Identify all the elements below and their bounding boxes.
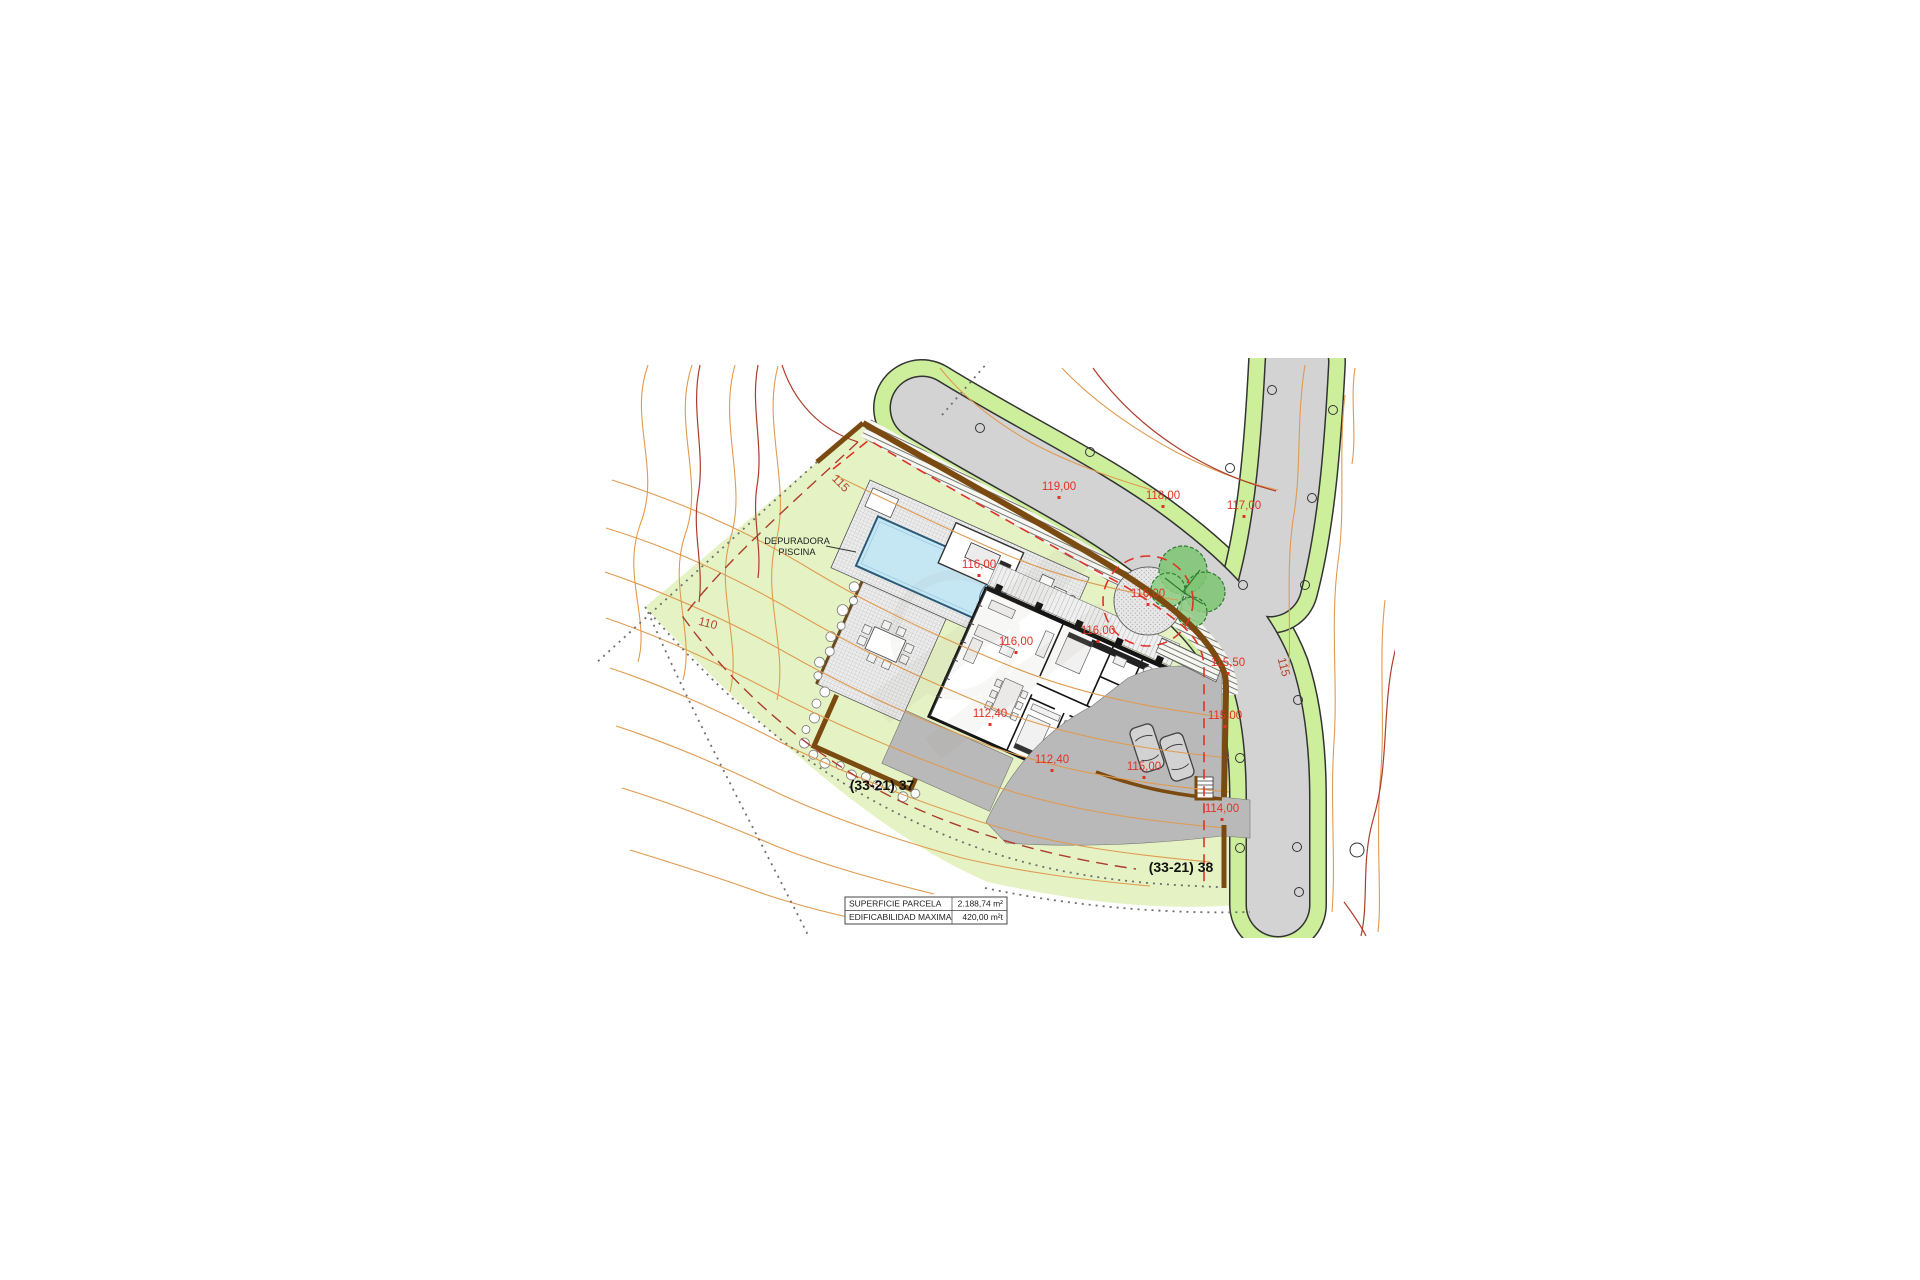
site-plan-canvas: 119,00 118,00 117,00 116,00 116,00 116,0… <box>0 0 1920 1280</box>
annotation-line2: PISCINA <box>778 547 816 557</box>
spot-elevation-label: 114,00 <box>1205 803 1239 815</box>
spot-elevation-label: 115,00 <box>1127 761 1161 773</box>
annotation-line1: DEPURADORA <box>764 536 830 546</box>
spot-elevation-label: 112,40 <box>1035 754 1069 766</box>
spot-elevation-label: 117,00 <box>1227 500 1261 512</box>
spot-elevation-label: 118,00 <box>1146 490 1180 502</box>
table-row-value: 420,00 m²t <box>962 912 1003 922</box>
spot-elevation-label: 112,40 <box>973 708 1007 720</box>
spot-elevation-label: 115,00 <box>1208 710 1242 722</box>
table-row-label: SUPERFICIE PARCELA <box>849 899 942 909</box>
spot-elevation-label: 116,00 <box>1131 588 1165 600</box>
entrance-stair <box>1196 776 1215 799</box>
site-plan-page: 119,00 118,00 117,00 116,00 116,00 116,0… <box>0 0 1920 1280</box>
spot-elevation-label: 116,00 <box>1081 625 1115 637</box>
spot-elevation-label: 116,00 <box>999 636 1033 648</box>
table-row-value: 2.188,74 m² <box>958 899 1004 909</box>
info-table: SUPERFICIE PARCELA 2.188,74 m² EDIFICABI… <box>845 897 1007 924</box>
spot-elevation-label: 116,00 <box>962 559 996 571</box>
spot-elevation-label: 119,00 <box>1042 481 1076 493</box>
table-row-label: EDIFICABILIDAD MAXIMA <box>849 912 952 922</box>
parcel-id-label: (33-21) 37 <box>850 777 915 793</box>
parcel-id-label: (33-21) 38 <box>1149 859 1214 875</box>
spot-elevation-label: 115,50 <box>1211 657 1245 669</box>
